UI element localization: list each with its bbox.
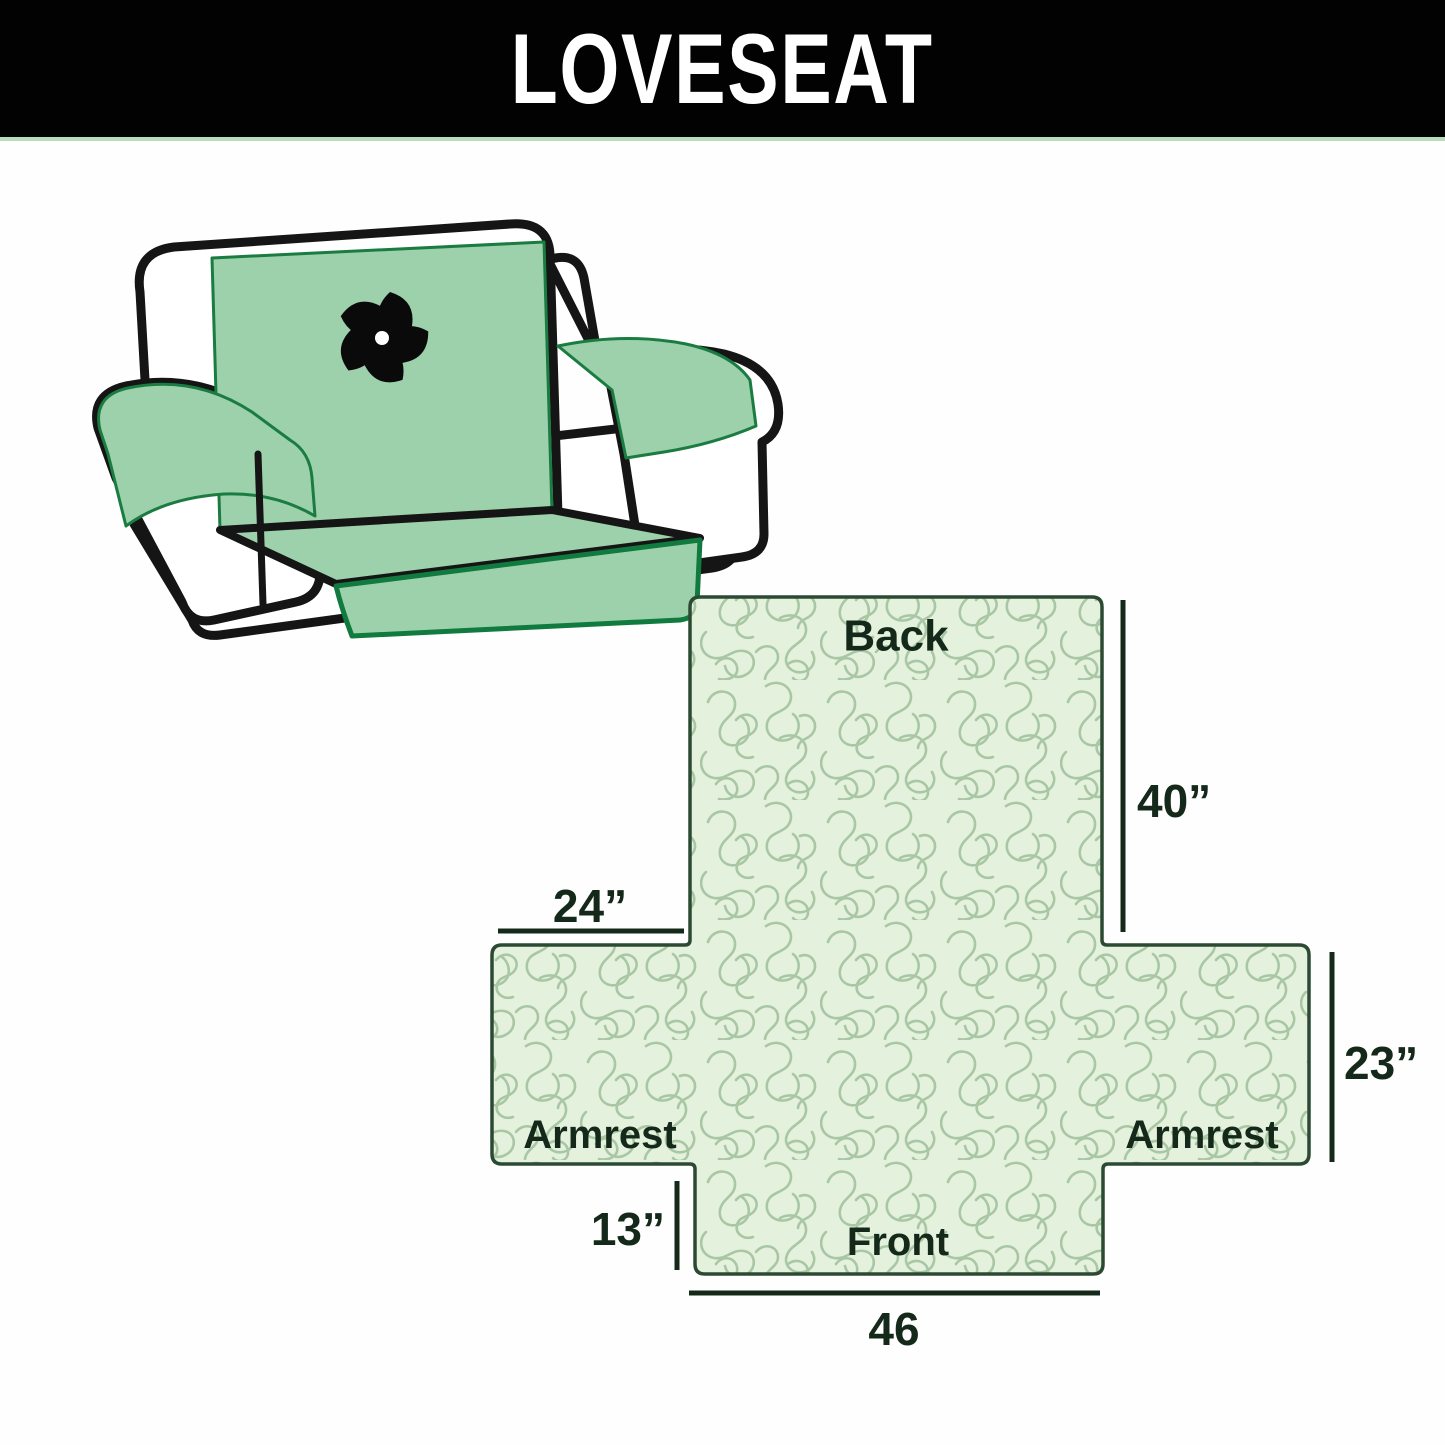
dim-armrest-left-width: 24”: [553, 880, 627, 932]
label-armrest-right: Armrest: [1125, 1113, 1278, 1157]
dim-front-width: 46: [868, 1303, 919, 1355]
label-armrest-left: Armrest: [523, 1113, 676, 1157]
dim-front-drop: 13”: [591, 1203, 665, 1255]
product-infographic: LOVESEAT: [0, 0, 1445, 1445]
dim-armrest-depth: 23”: [1344, 1037, 1418, 1089]
left-arm-seam: [258, 454, 263, 604]
cover-cross-shape: [492, 597, 1309, 1274]
cover-layout-diagram: Back Armrest Armrest Front 40” 24” 23” 1…: [460, 560, 1445, 1400]
label-back: Back: [843, 612, 949, 661]
dim-back-height: 40”: [1137, 775, 1211, 827]
banner-title: LOVESEAT: [511, 19, 934, 118]
dimension-diagram: Back Armrest Armrest Front 40” 24” 23” 1…: [460, 560, 1445, 1400]
label-front: Front: [847, 1220, 949, 1264]
title-banner: LOVESEAT: [0, 0, 1445, 141]
